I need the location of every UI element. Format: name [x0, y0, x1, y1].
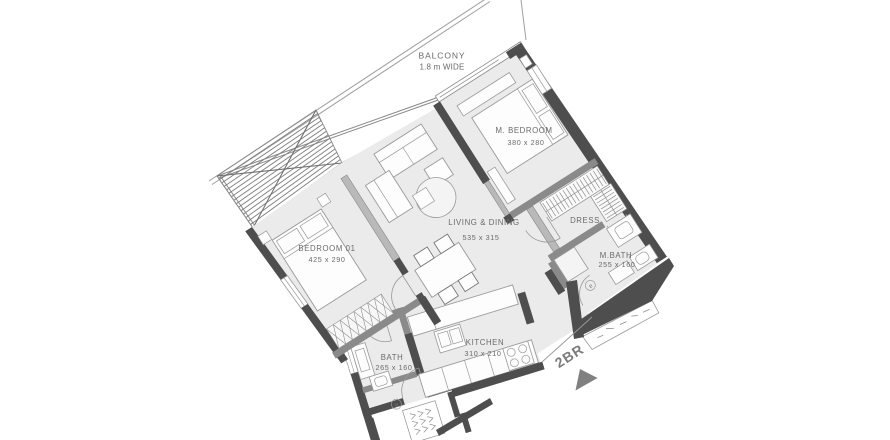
- svg-text:265 x 160: 265 x 160: [376, 363, 413, 372]
- svg-text:255 x 160: 255 x 160: [599, 260, 636, 269]
- svg-text:1.8 m WIDE: 1.8 m WIDE: [419, 63, 464, 72]
- svg-text:M.BATH: M.BATH: [600, 251, 632, 260]
- svg-text:380 x 280: 380 x 280: [508, 138, 545, 147]
- svg-text:KITCHEN: KITCHEN: [466, 338, 504, 347]
- svg-text:535 x 315: 535 x 315: [463, 233, 500, 242]
- svg-text:DRESS: DRESS: [570, 216, 600, 225]
- svg-text:BALCONY: BALCONY: [419, 51, 466, 61]
- svg-text:LIVING & DINING: LIVING & DINING: [448, 218, 519, 227]
- svg-text:BATH: BATH: [381, 353, 404, 362]
- svg-text:M. BEDROOM: M. BEDROOM: [495, 126, 552, 135]
- svg-text:310 x 210: 310 x 210: [465, 349, 502, 358]
- svg-text:425 x 290: 425 x 290: [309, 255, 346, 264]
- svg-text:BEDROOM 01: BEDROOM 01: [298, 244, 355, 253]
